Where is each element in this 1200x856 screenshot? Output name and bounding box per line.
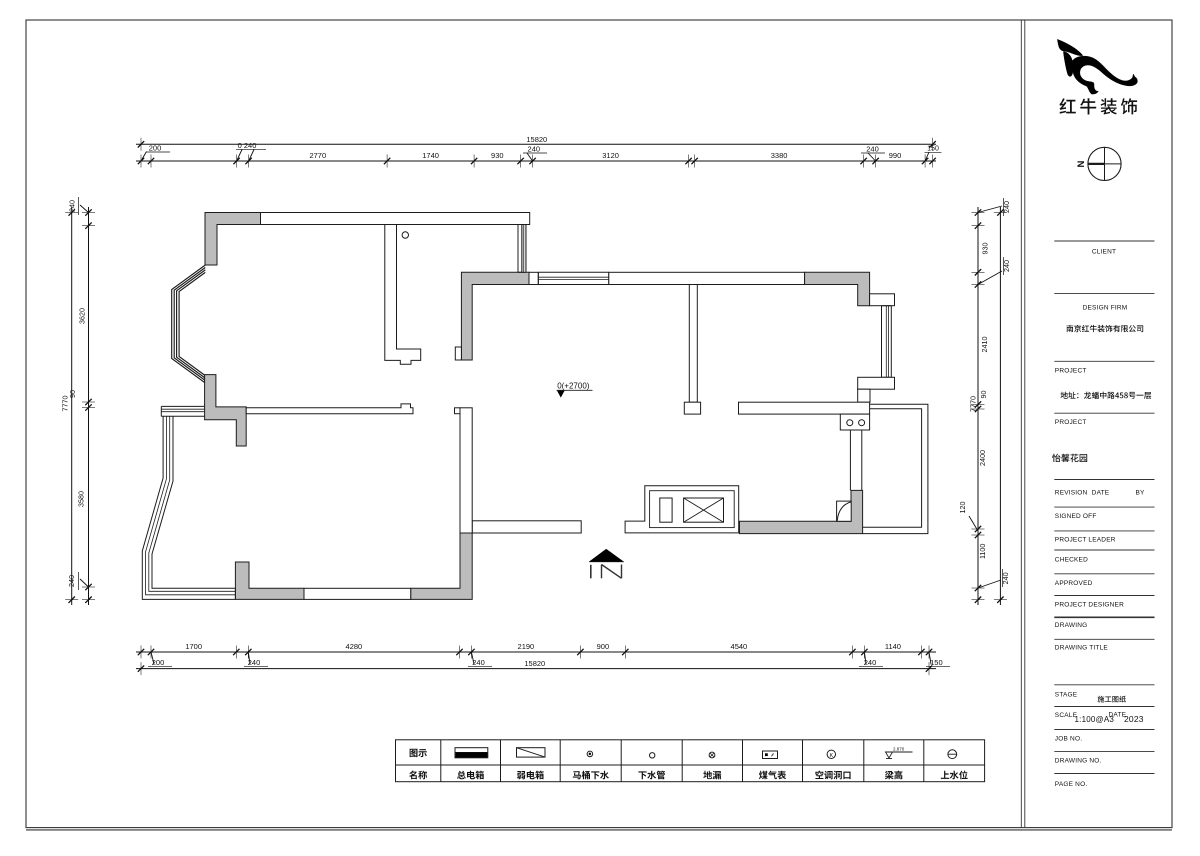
svg-text:DRAWING NO.: DRAWING NO. [1055,757,1102,764]
svg-text:240: 240 [472,658,485,667]
svg-text:APPROVED: APPROVED [1055,580,1093,587]
svg-text:DATE: DATE [1092,489,1110,496]
svg-text:2.870: 2.870 [893,747,905,752]
svg-text:PAGE NO.: PAGE NO. [1055,781,1088,788]
svg-text:150: 150 [927,146,939,153]
svg-text:STAGE: STAGE [1055,692,1078,699]
svg-text:3120: 3120 [602,151,619,160]
svg-text:990: 990 [889,151,902,160]
svg-text:N: N [1076,160,1087,167]
svg-text:7770: 7770 [61,396,70,412]
svg-text:1100: 1100 [978,544,987,559]
svg-text:DESIGN FIRM: DESIGN FIRM [1083,304,1128,311]
svg-text:3380: 3380 [771,151,788,160]
svg-text:DRAWING: DRAWING [1055,622,1088,629]
svg-text:15820: 15820 [526,135,547,144]
svg-text:4280: 4280 [346,642,363,651]
svg-text:SIGNED OFF: SIGNED OFF [1055,513,1097,520]
svg-text:240: 240 [67,575,76,587]
svg-text:K: K [829,753,833,759]
svg-text:REVISION: REVISION [1055,489,1088,496]
svg-text:PROJECT DESIGNER: PROJECT DESIGNER [1055,601,1124,608]
svg-text:PROJECT: PROJECT [1055,367,1087,374]
svg-text:930: 930 [491,151,504,160]
svg-text:930: 930 [981,243,990,255]
svg-text:DRAWING TITLE: DRAWING TITLE [1055,644,1109,651]
svg-text:4540: 4540 [731,642,748,651]
svg-text:2410: 2410 [980,337,989,353]
svg-text:15820: 15820 [524,659,545,668]
svg-text:900: 900 [597,642,610,651]
svg-text:3620: 3620 [78,308,87,324]
svg-text:0 240: 0 240 [238,141,257,150]
svg-text:120: 120 [958,502,967,514]
svg-text:BY: BY [1135,489,1145,496]
svg-text:1140: 1140 [885,642,901,651]
svg-text:240: 240 [528,145,541,154]
svg-text:0(+2700): 0(+2700) [557,381,590,390]
svg-text:1700: 1700 [185,642,202,651]
svg-text:240: 240 [68,200,77,212]
svg-text:2770: 2770 [309,151,326,160]
svg-text:CLIENT: CLIENT [1092,249,1116,256]
svg-text:240: 240 [866,145,879,154]
svg-text:2400: 2400 [978,450,987,466]
svg-text:2190: 2190 [518,642,535,651]
svg-text:7770: 7770 [969,396,978,412]
svg-text:JOB NO.: JOB NO. [1055,736,1082,743]
svg-text:200: 200 [149,144,162,153]
svg-text:CHECKED: CHECKED [1055,556,1088,563]
svg-text:3580: 3580 [77,491,86,507]
svg-text:1740: 1740 [422,151,439,160]
svg-text:PROJECT: PROJECT [1055,419,1087,426]
svg-text:PROJECT LEADER: PROJECT LEADER [1055,537,1116,544]
svg-text:2023: 2023 [1124,714,1144,724]
svg-text:90: 90 [979,391,988,399]
